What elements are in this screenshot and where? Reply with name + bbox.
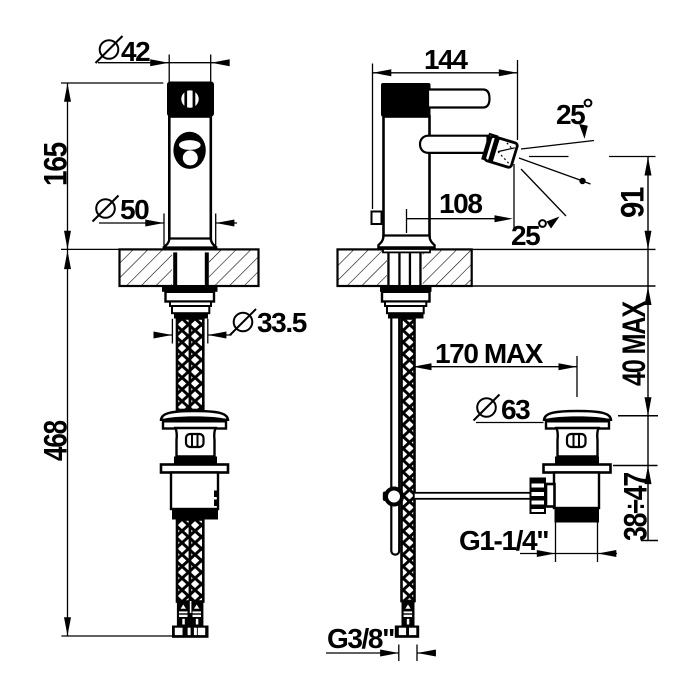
svg-text:144: 144 [424, 44, 468, 75]
svg-text:50: 50 [120, 194, 149, 225]
svg-text:108: 108 [439, 188, 482, 219]
svg-text:40 MAX: 40 MAX [616, 300, 652, 386]
svg-text:63: 63 [501, 394, 530, 425]
svg-text:G1-1/4": G1-1/4" [459, 525, 548, 556]
svg-text:170 MAX: 170 MAX [435, 338, 544, 369]
svg-text:468: 468 [38, 421, 74, 461]
svg-text:33.5: 33.5 [257, 307, 307, 338]
svg-text:G3/8": G3/8" [327, 623, 394, 654]
svg-text:25: 25 [511, 220, 540, 251]
svg-text:38÷47: 38÷47 [618, 473, 654, 541]
svg-text:165: 165 [38, 142, 74, 186]
svg-text:91: 91 [615, 187, 651, 218]
